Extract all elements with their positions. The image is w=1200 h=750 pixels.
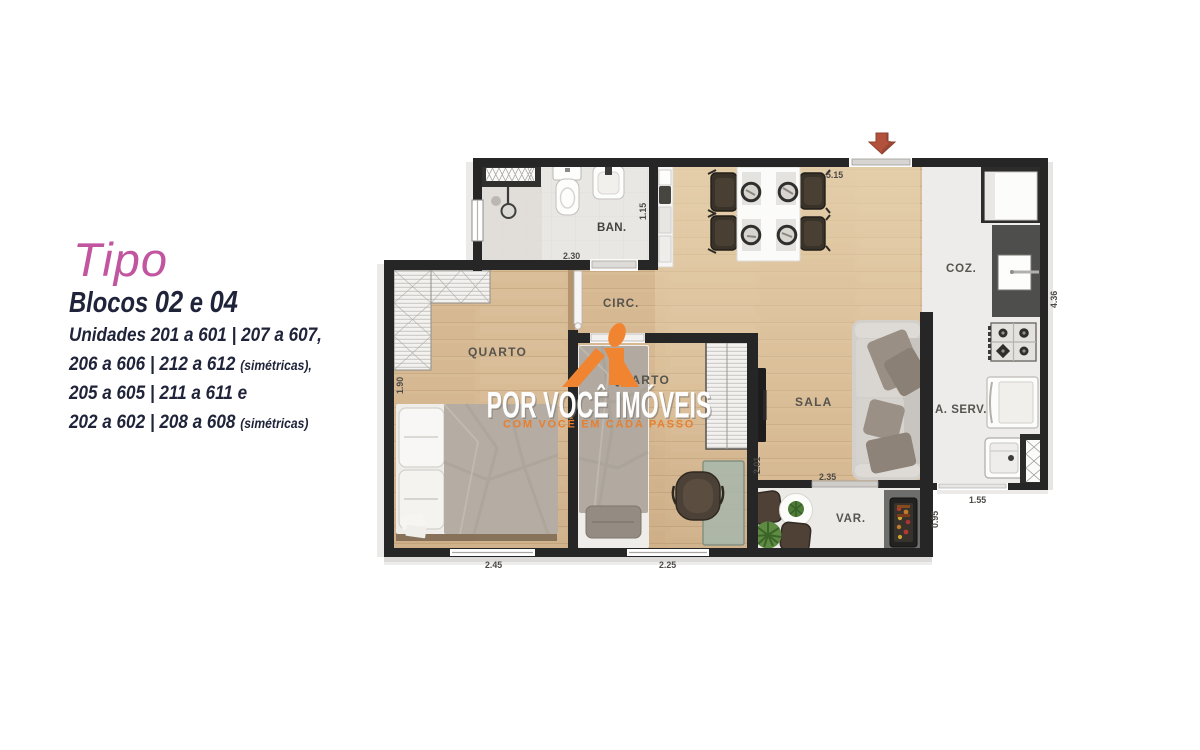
svg-text:0.95: 0.95: [930, 511, 940, 528]
svg-text:A. SERV.: A. SERV.: [935, 404, 987, 416]
svg-text:1.90: 1.90: [395, 377, 405, 394]
svg-text:2.25: 2.25: [659, 560, 676, 570]
svg-text:COM VOCÊ EM CADA PASSO: COM VOCÊ EM CADA PASSO: [503, 418, 695, 431]
svg-text:QUARTO: QUARTO: [468, 345, 527, 359]
svg-text:1.55: 1.55: [969, 495, 986, 505]
svg-text:5.15: 5.15: [826, 170, 843, 180]
svg-text:1.15: 1.15: [638, 203, 648, 220]
svg-text:2.35: 2.35: [819, 472, 836, 482]
svg-text:CIRC.: CIRC.: [603, 298, 639, 310]
svg-text:2.30: 2.30: [563, 251, 580, 261]
svg-text:VAR.: VAR.: [836, 513, 866, 525]
svg-text:2.01: 2.01: [752, 457, 762, 474]
svg-text:SALA: SALA: [795, 395, 832, 409]
svg-text:COZ.: COZ.: [946, 263, 977, 275]
svg-text:BAN.: BAN.: [597, 222, 626, 234]
svg-text:2.45: 2.45: [485, 560, 502, 570]
svg-text:4.36: 4.36: [1049, 291, 1059, 308]
